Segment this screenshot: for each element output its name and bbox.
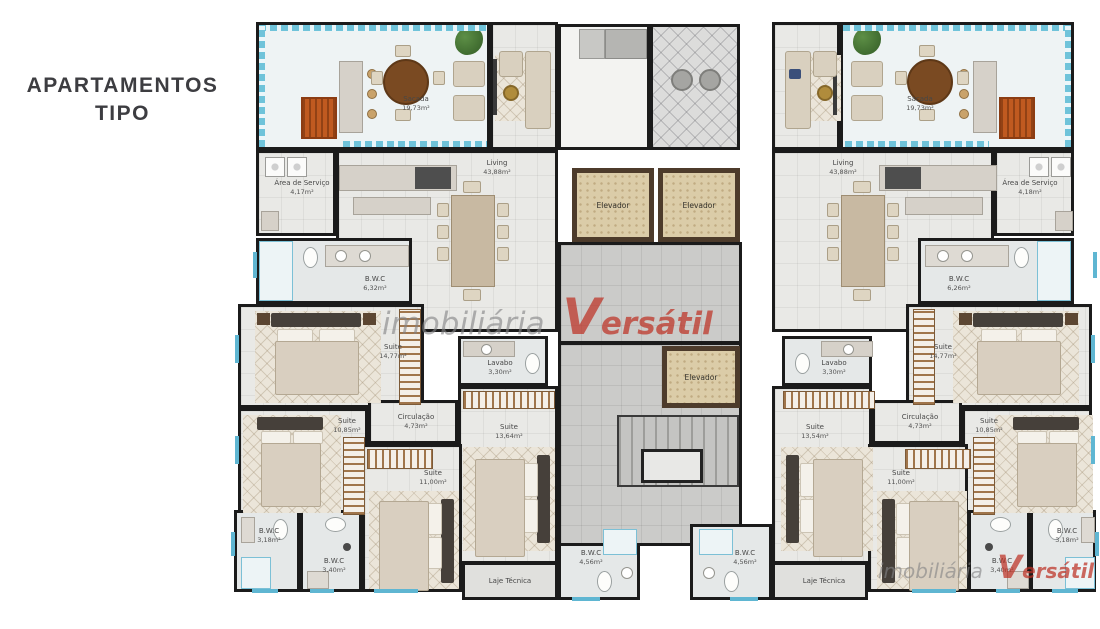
shower-icon xyxy=(1065,557,1095,589)
label-suite-master: Suite 14,77m² xyxy=(367,343,419,360)
room-sacada-right: Sacada 19,73m² xyxy=(840,22,1074,150)
label-sacada: Sacada 19,73m² xyxy=(371,95,461,112)
cooktop-icon xyxy=(415,167,451,189)
window xyxy=(374,589,418,593)
sink-icon xyxy=(481,344,492,355)
core-hall xyxy=(558,242,742,344)
chair-icon xyxy=(887,203,899,217)
label-servico: Área de Serviço 4,17m² xyxy=(273,179,331,196)
bed-headboard xyxy=(973,313,1063,327)
pillow-icon xyxy=(427,537,442,569)
room-suite2-left: Suite 10,85m² xyxy=(238,408,368,518)
label-suite2: Suite 10,85m² xyxy=(969,417,1009,434)
bed-headboard xyxy=(1013,417,1079,430)
window xyxy=(572,597,600,601)
armchair-icon xyxy=(453,61,485,87)
label-lavabo: Lavabo 3,30m² xyxy=(809,359,859,376)
shower-icon xyxy=(241,557,271,589)
toilet-icon xyxy=(597,571,612,592)
label-bwc-servico: B.W.C 4,56m² xyxy=(723,549,767,566)
cooktop-icon xyxy=(885,167,921,189)
sink-icon xyxy=(703,567,715,579)
label-laje: Laje Técnica xyxy=(791,577,857,586)
bed-icon xyxy=(379,501,429,591)
balcony-railing xyxy=(1065,25,1071,147)
closet-icon xyxy=(905,449,971,469)
balcony-railing xyxy=(843,25,1071,31)
window xyxy=(231,532,235,556)
window xyxy=(252,589,278,593)
bed-icon xyxy=(977,341,1061,395)
chair-icon xyxy=(395,45,411,57)
window xyxy=(730,597,758,601)
shower-head-icon xyxy=(985,543,993,551)
balcony-railing xyxy=(845,141,989,147)
ac-unit-icon xyxy=(579,29,605,59)
label-suite2: Suite 10,85m² xyxy=(327,417,367,434)
pillow-icon xyxy=(427,503,442,535)
laundry-sink xyxy=(1055,211,1073,231)
label-elevator-2: Elevador xyxy=(663,173,735,237)
chair-icon xyxy=(895,71,907,85)
room-lavabo-left: Lavabo 3,30m² xyxy=(458,336,548,386)
chair-icon xyxy=(433,71,445,85)
chair-icon xyxy=(887,225,899,239)
sink-icon xyxy=(843,344,854,355)
label-suite3: Suite 13,64m² xyxy=(481,423,537,440)
nightstand-icon xyxy=(257,313,270,325)
label-suite4: Suite 11,00m² xyxy=(407,469,459,486)
toilet-icon xyxy=(724,571,739,592)
closet-icon xyxy=(367,449,433,469)
room-circulacao-right: Circulação 4,73m² xyxy=(872,400,962,444)
chair-icon xyxy=(437,225,449,239)
room-circulacao-left: Circulação 4,73m² xyxy=(368,400,458,444)
bar-counter xyxy=(973,61,997,133)
label-servico: Área de Serviço 4,18m² xyxy=(1001,179,1059,196)
armchair-icon xyxy=(851,61,883,87)
chair-icon xyxy=(463,289,481,301)
room-suite4-left: Suite 11,00m² xyxy=(362,444,462,592)
shower-icon xyxy=(1037,241,1071,301)
barbecue-grill-icon xyxy=(301,97,337,139)
room-suite2-right: Suite 10,85m² xyxy=(962,408,1092,518)
chair-icon xyxy=(919,45,935,57)
chair-icon xyxy=(957,71,969,85)
nightstand-icon xyxy=(363,313,376,325)
label-lavabo: Lavabo 3,30m² xyxy=(475,359,525,376)
label-suite-master: Suite 14,77m² xyxy=(917,343,969,360)
bed-icon xyxy=(813,459,863,557)
bed-icon xyxy=(275,341,359,395)
round-table-icon xyxy=(699,69,721,91)
dining-table-icon xyxy=(451,195,495,287)
side-table-icon xyxy=(503,85,519,101)
label-laje: Laje Técnica xyxy=(477,577,543,586)
tv-icon xyxy=(493,59,497,115)
plant-icon xyxy=(853,27,881,55)
room-lavabo-right: Lavabo 3,30m² xyxy=(782,336,872,386)
chair-icon xyxy=(887,247,899,261)
chair-icon xyxy=(371,71,383,85)
core-tech-room-left xyxy=(558,24,650,150)
room-servico-right: Área de Serviço 4,18m² xyxy=(994,150,1074,236)
label-bwc-suite: B.W.C 6,32m² xyxy=(343,275,407,292)
page-title: APARTAMENTOS TIPO xyxy=(20,72,225,129)
window xyxy=(1091,335,1095,363)
bed-headboard xyxy=(257,417,323,430)
room-suite3-left: Suite 13,64m² xyxy=(458,386,558,564)
washer-icon xyxy=(287,157,307,177)
window xyxy=(235,436,239,464)
bed-icon xyxy=(909,501,959,591)
elevator-2: Elevador xyxy=(658,168,740,242)
toilet-icon xyxy=(325,517,346,532)
kitchen-island xyxy=(353,197,431,215)
laundry-sink xyxy=(261,211,279,231)
toilet-icon xyxy=(795,353,810,374)
label-suite4: Suite 11,00m² xyxy=(875,469,927,486)
room-bwc2-right: B.W.C 3,18m² xyxy=(1030,510,1096,592)
room-living-lounge-left xyxy=(490,22,558,150)
label-living: Living 43,88m² xyxy=(803,159,883,176)
chair-icon xyxy=(497,247,509,261)
dining-table-icon xyxy=(841,195,885,287)
label-bwc3: B.W.C 3,40m² xyxy=(979,557,1025,574)
page-title-line2: TIPO xyxy=(20,100,225,128)
shower-head-icon xyxy=(343,543,351,551)
bed-headboard xyxy=(786,455,799,543)
closet-icon xyxy=(463,391,555,409)
nightstand-icon xyxy=(1065,313,1078,325)
nightstand-icon xyxy=(959,313,972,325)
plant-icon xyxy=(455,27,483,55)
bed-headboard xyxy=(271,313,361,327)
sofa-icon xyxy=(525,51,551,129)
window xyxy=(912,589,956,593)
page-title-line1: APARTAMENTOS xyxy=(20,72,225,100)
washer-icon xyxy=(265,157,285,177)
sink-icon xyxy=(335,250,347,262)
label-bwc2: B.W.C 3,18m² xyxy=(247,527,291,544)
core-tech-room-right xyxy=(650,24,740,150)
balcony-railing xyxy=(259,25,487,31)
label-suite3: Suite 13,54m² xyxy=(787,423,843,440)
sofa-icon xyxy=(813,51,837,77)
room-bwc-servico-right: B.W.C 4,56m² xyxy=(690,524,772,600)
chair-icon xyxy=(497,203,509,217)
window xyxy=(1091,436,1095,464)
toilet-icon xyxy=(990,517,1011,532)
label-bwc2: B.W.C 3,18m² xyxy=(1045,527,1089,544)
washer-icon xyxy=(1051,157,1071,177)
shower-icon xyxy=(259,241,293,301)
label-elevator-3: Elevador xyxy=(667,351,735,403)
chair-icon xyxy=(463,181,481,193)
room-sacada-left: Sacada 19,73m² xyxy=(256,22,490,150)
chair-icon xyxy=(827,247,839,261)
bed-icon xyxy=(261,443,321,507)
label-sacada: Sacada 19,73m² xyxy=(875,95,965,112)
room-bwc2-left: B.W.C 3,18m² xyxy=(234,510,300,592)
chair-icon xyxy=(827,203,839,217)
round-table-icon xyxy=(671,69,693,91)
label-circulacao: Circulação 4,73m² xyxy=(389,413,443,430)
sink-icon xyxy=(621,567,633,579)
window xyxy=(1093,252,1097,278)
chair-icon xyxy=(437,247,449,261)
bed-icon xyxy=(1017,443,1077,507)
room-laje-right: Laje Técnica xyxy=(772,562,868,600)
room-bwc-suite-right: B.W.C 6,26m² xyxy=(918,238,1074,304)
bar-counter xyxy=(339,61,363,133)
cushion-icon xyxy=(789,69,801,79)
bed-headboard xyxy=(882,499,895,583)
sink-icon xyxy=(961,250,973,262)
room-laje-left: Laje Técnica xyxy=(462,562,558,600)
closet-icon xyxy=(343,437,365,515)
chair-icon xyxy=(437,203,449,217)
room-living-lounge-right xyxy=(772,22,840,150)
closet-icon xyxy=(783,391,875,409)
window xyxy=(253,252,257,278)
sofa-icon xyxy=(499,51,523,77)
chair-icon xyxy=(853,181,871,193)
elevator-1: Elevador xyxy=(572,168,654,242)
sink-icon xyxy=(937,250,949,262)
pillow-icon xyxy=(523,499,538,533)
label-living: Living 43,88m² xyxy=(457,159,537,176)
chair-icon xyxy=(853,289,871,301)
bed-icon xyxy=(475,459,525,557)
kitchen-island xyxy=(905,197,983,215)
label-elevator-1: Elevador xyxy=(577,173,649,237)
window xyxy=(996,589,1020,593)
window xyxy=(235,335,239,363)
toilet-icon xyxy=(525,353,540,374)
label-bwc3: B.W.C 3,40m² xyxy=(311,557,357,574)
room-bwc3-right: B.W.C 3,40m² xyxy=(968,510,1030,592)
bed-headboard xyxy=(537,455,550,543)
elevator-3: Elevador xyxy=(662,346,740,408)
ac-unit-icon xyxy=(605,29,647,59)
floorplan-page: APARTAMENTOS TIPO Sacada 19,73m² Área de… xyxy=(0,0,1100,629)
sink-icon xyxy=(359,250,371,262)
room-bwc3-left: B.W.C 3,40m² xyxy=(300,510,362,592)
room-bwc-suite-left: B.W.C 6,32m² xyxy=(256,238,412,304)
balcony-railing xyxy=(259,25,265,147)
label-bwc-suite: B.W.C 6,26m² xyxy=(927,275,991,292)
room-suite4-right: Suite 11,00m² xyxy=(868,444,968,592)
sofa-icon xyxy=(785,51,811,129)
barbecue-grill-icon xyxy=(999,97,1035,139)
window xyxy=(310,589,334,593)
room-suite-master-left: Suite 14,77m² xyxy=(238,304,424,408)
room-suite3-right: Suite 13,54m² xyxy=(772,386,872,564)
label-bwc-servico: B.W.C 4,56m² xyxy=(569,549,613,566)
chair-icon xyxy=(497,225,509,239)
balcony-railing xyxy=(343,141,487,147)
side-table-icon xyxy=(817,85,833,101)
room-suite-master-right: Suite 14,77m² xyxy=(906,304,1092,408)
bed-headboard xyxy=(441,499,454,583)
pillow-icon xyxy=(523,463,538,497)
toilet-icon xyxy=(303,247,318,268)
window xyxy=(1052,589,1078,593)
stair-landing xyxy=(641,449,703,483)
chair-icon xyxy=(827,225,839,239)
label-circulacao: Circulação 4,73m² xyxy=(893,413,947,430)
washer-icon xyxy=(1029,157,1049,177)
room-servico-left: Área de Serviço 4,17m² xyxy=(256,150,336,236)
window xyxy=(1095,532,1099,556)
toilet-icon xyxy=(1014,247,1029,268)
closet-icon xyxy=(973,437,995,515)
